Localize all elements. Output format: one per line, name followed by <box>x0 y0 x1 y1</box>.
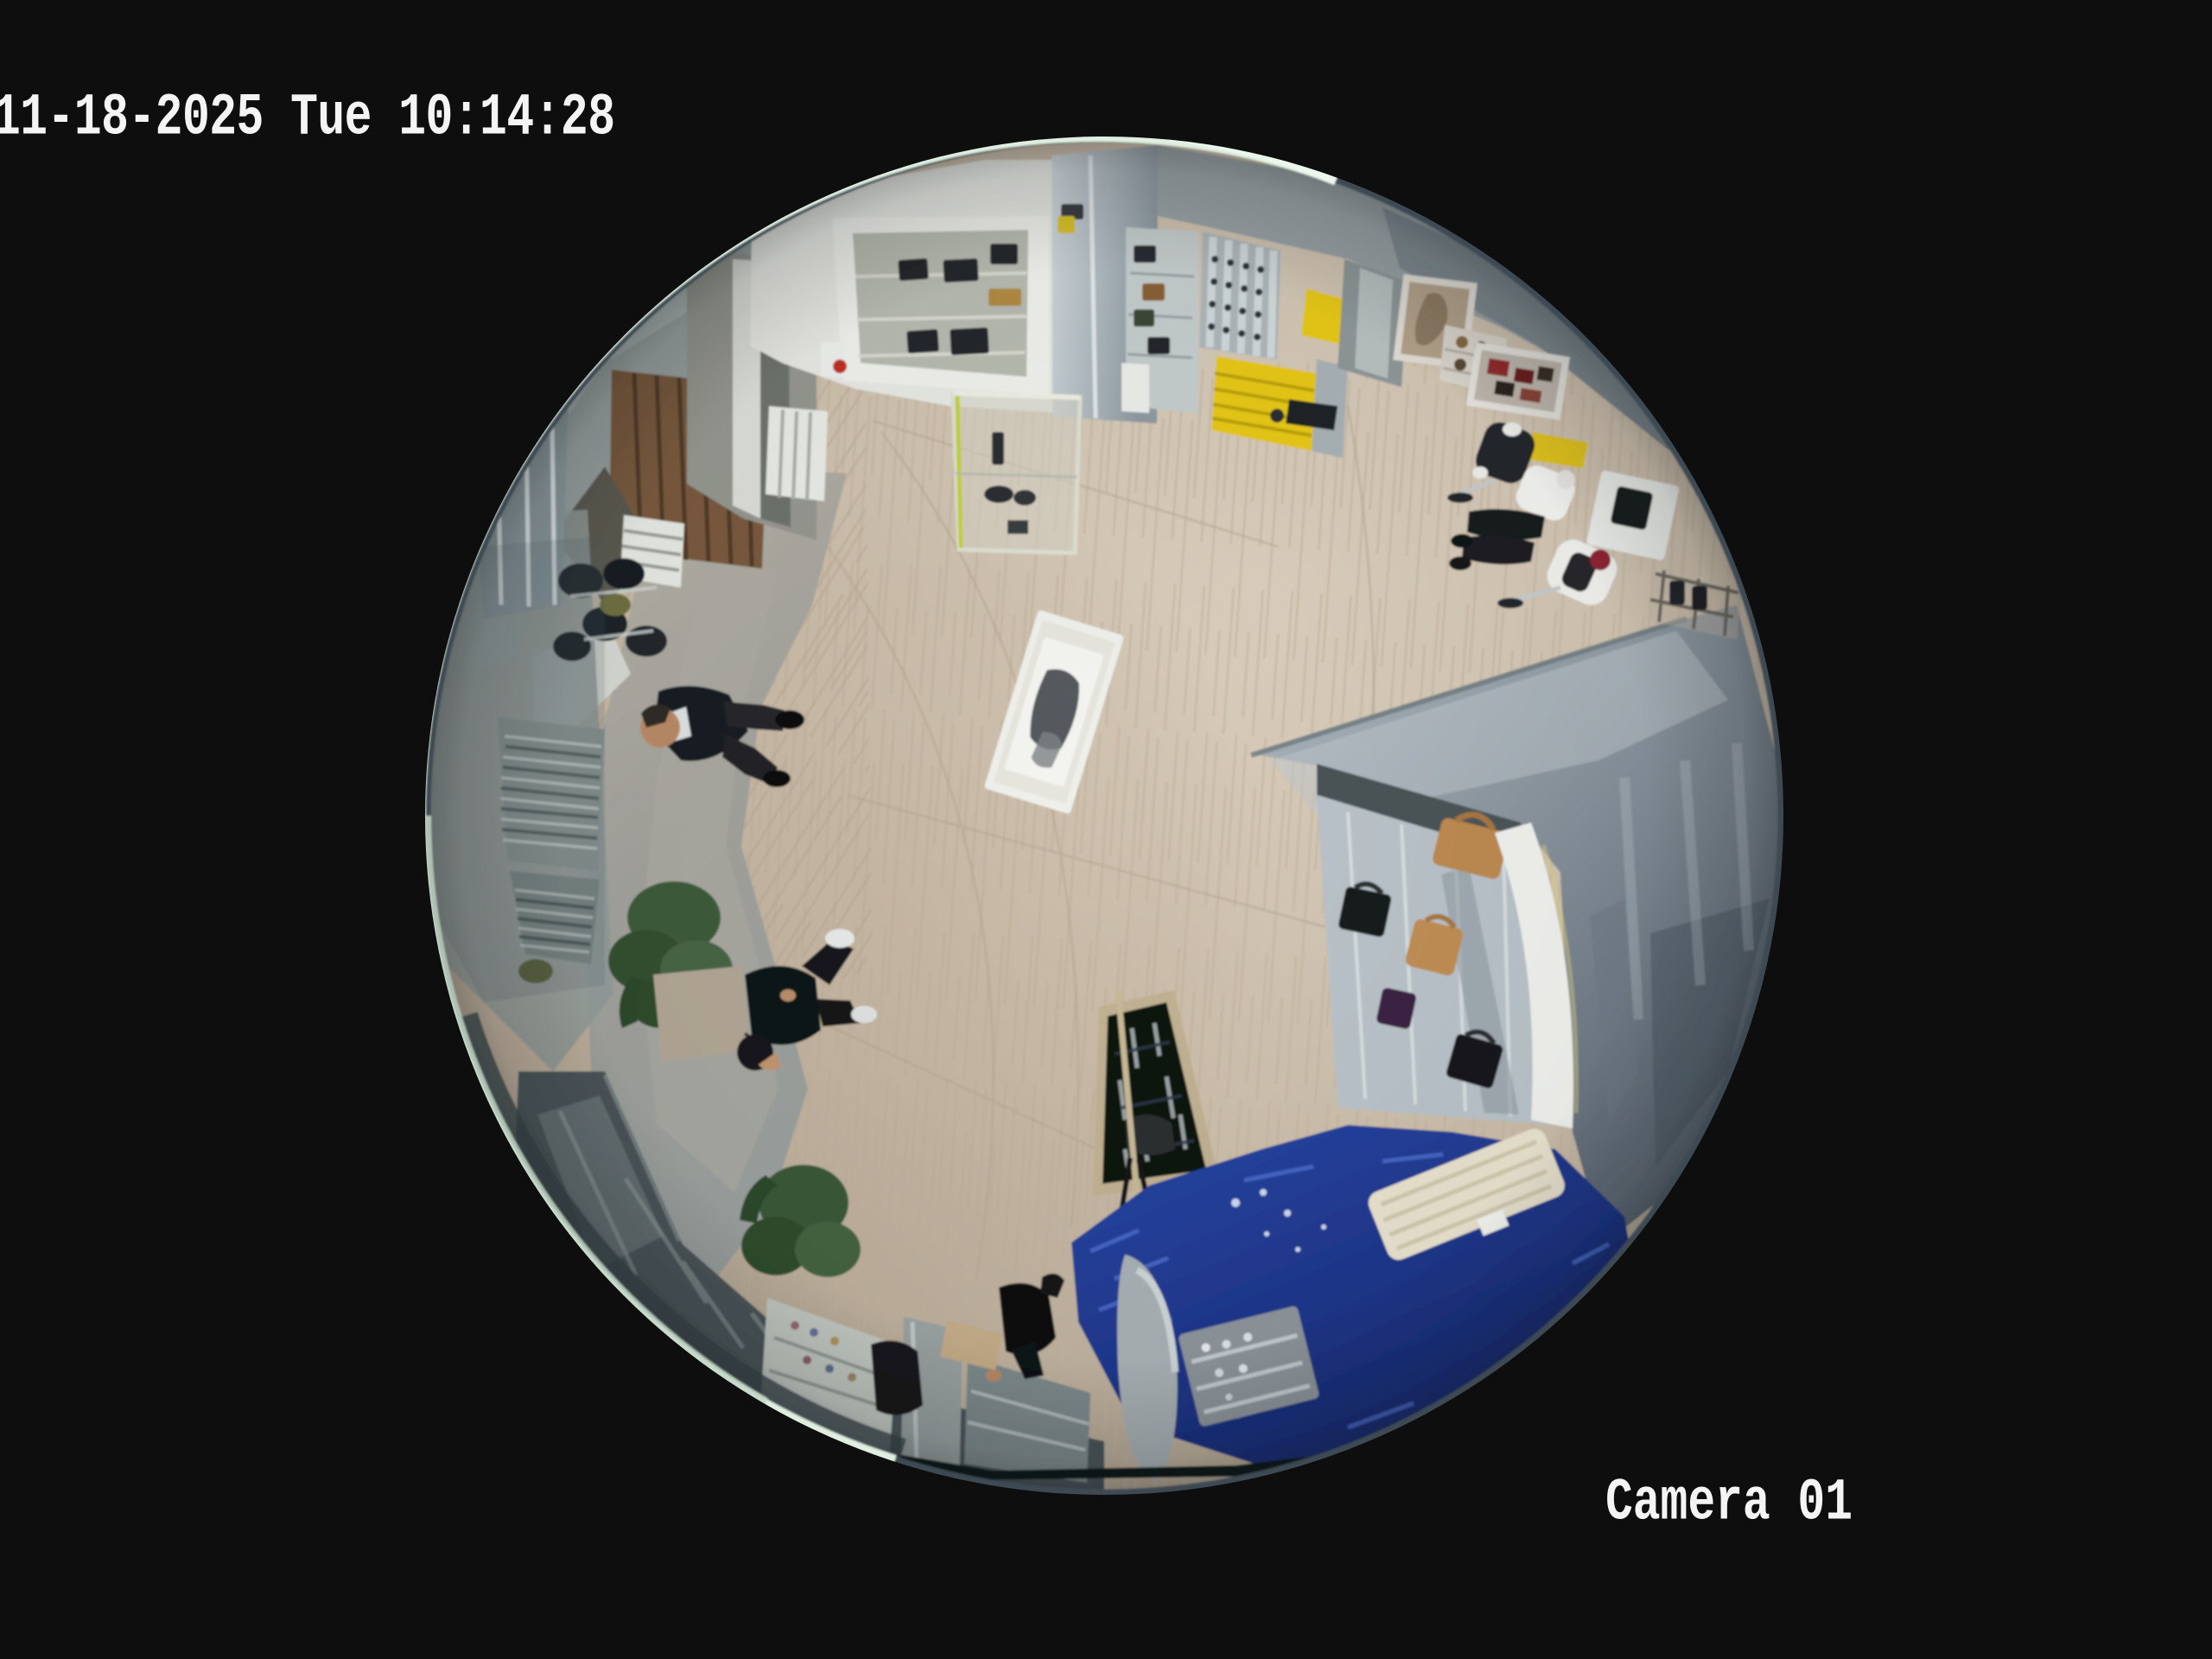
svg-text:11-18-2025 Tue 10:14:28: 11-18-2025 Tue 10:14:28 <box>0 86 615 152</box>
svg-text:Camera 01: Camera 01 <box>1605 1471 1853 1537</box>
